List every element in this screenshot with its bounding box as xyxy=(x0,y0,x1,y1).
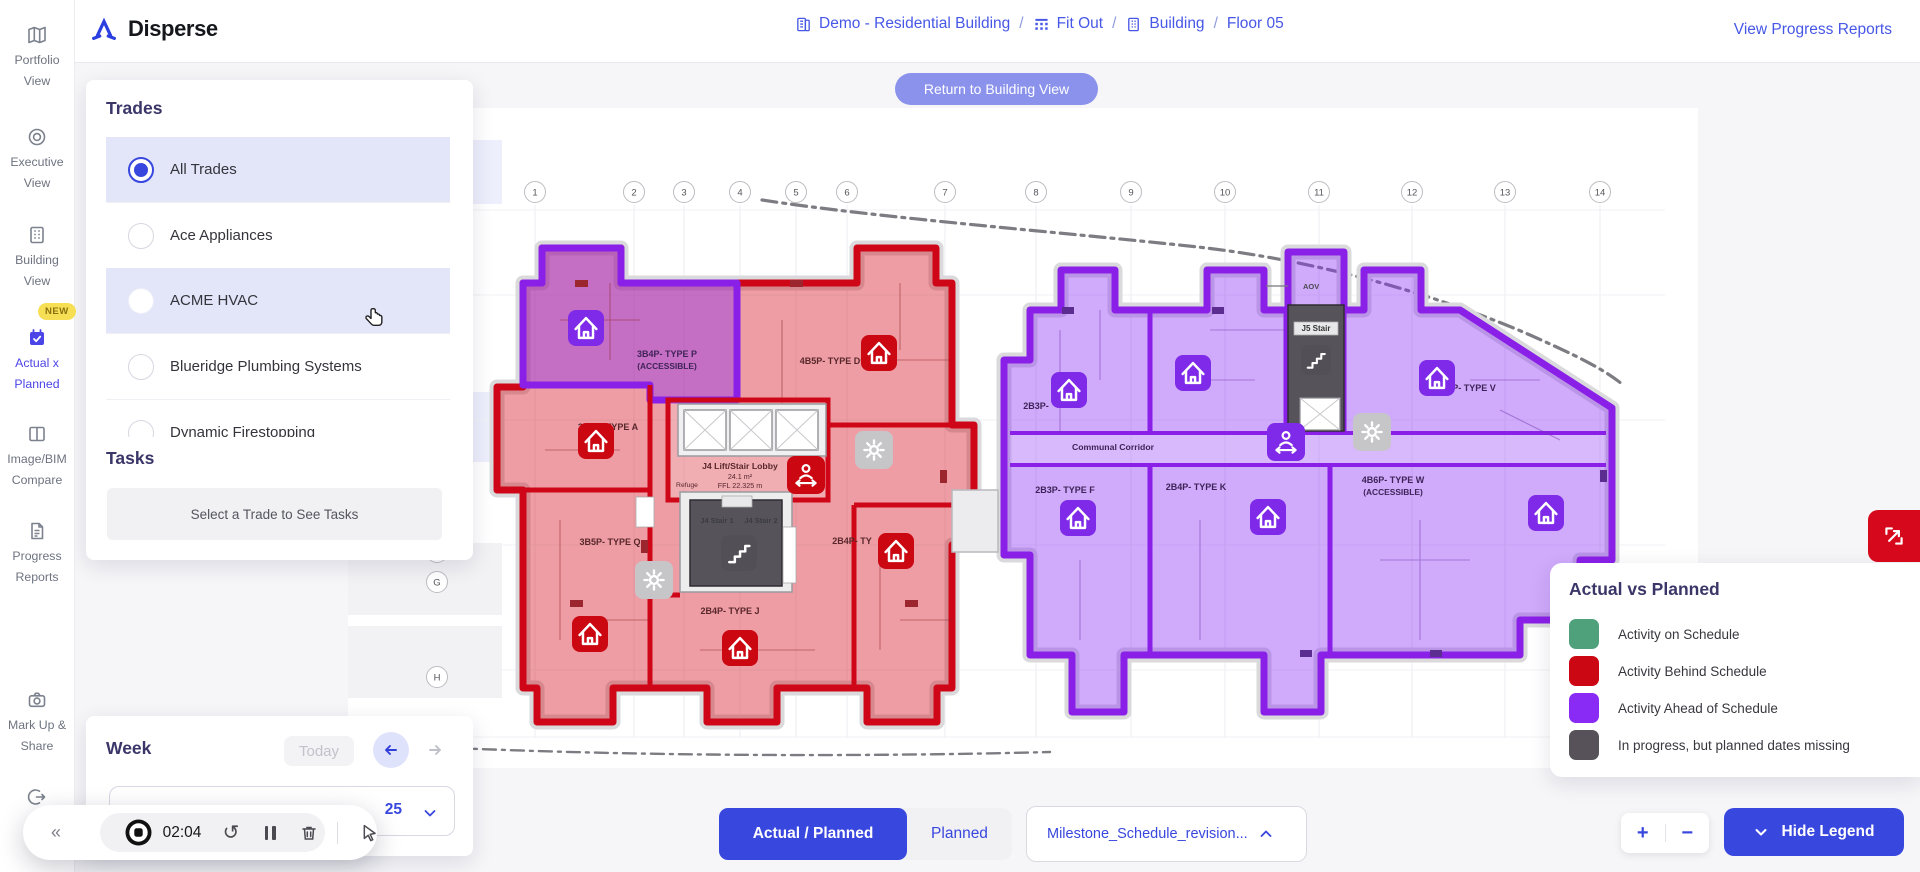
svg-text:13: 13 xyxy=(1500,188,1511,199)
legend-item-dates-missing: In progress, but planned dates missing xyxy=(1569,730,1850,760)
svg-text:(ACCESSIBLE): (ACCESSIBLE) xyxy=(637,361,697,371)
home-icon-badge-behind[interactable] xyxy=(572,616,608,652)
legend-swatch xyxy=(1569,656,1599,686)
svg-text:2B3P- TYPE F: 2B3P- TYPE F xyxy=(1035,485,1095,495)
svg-text:2B4P- TYPE J: 2B4P- TYPE J xyxy=(700,606,759,616)
sidebar-item-building-view[interactable]: Building View xyxy=(0,224,74,292)
radio-unselected[interactable] xyxy=(128,288,154,314)
svg-text:3B4P- TYPE P: 3B4P- TYPE P xyxy=(637,349,697,359)
sidebar-item-actual-x-planned[interactable]: NEW Actual x Planned xyxy=(0,327,74,395)
sidebar-item-image-bim-compare[interactable]: Image/BIM Compare xyxy=(0,423,74,491)
trade-option-dynamic-firestopping[interactable]: Dynamic Firestopping xyxy=(106,399,450,437)
sidebar-item-label: Executive View xyxy=(4,152,70,194)
legend-label: Activity Ahead of Schedule xyxy=(1618,701,1778,716)
trade-label: Ace Appliances xyxy=(170,227,273,244)
svg-text:12: 12 xyxy=(1407,188,1418,199)
svg-text:6: 6 xyxy=(844,188,849,199)
breadcrumb-project[interactable]: Demo - Residential Building xyxy=(795,15,1010,33)
svg-text:4B5P- TYPE D: 4B5P- TYPE D xyxy=(800,356,861,366)
tasks-placeholder: Select a Trade to See Tasks xyxy=(107,488,442,540)
schedule-revision-value: Milestone_Schedule_revision... xyxy=(1047,826,1248,842)
view-mode-toggle: Actual / Planned Planned xyxy=(719,808,1012,860)
breadcrumb-separator: / xyxy=(1112,15,1116,33)
phase-grid-icon xyxy=(1033,16,1050,33)
sidebar-item-label: Actual x Planned xyxy=(4,353,70,395)
breadcrumb-project-label: Demo - Residential Building xyxy=(819,15,1010,33)
trade-label: ACME HVAC xyxy=(170,292,258,309)
svg-text:1: 1 xyxy=(532,188,537,199)
breadcrumb-floor[interactable]: Floor 05 xyxy=(1227,15,1284,33)
zoom-out-button[interactable]: − xyxy=(1666,813,1710,853)
pause-icon[interactable] xyxy=(257,805,283,860)
svg-text:J4 Stair 2: J4 Stair 2 xyxy=(744,516,777,525)
stairs-icon-badge[interactable] xyxy=(721,535,757,571)
arrow-right-icon xyxy=(426,741,444,759)
app-logo[interactable]: Disperse xyxy=(88,13,218,45)
record-stop-button[interactable] xyxy=(123,805,153,860)
svg-text:2: 2 xyxy=(631,188,636,199)
trades-panel: Trades All Trades Ace Appliances ACME HV… xyxy=(86,80,473,560)
screen-recording-toolbar: « 02:04 ↺ xyxy=(23,805,377,860)
legend-title: Actual vs Planned xyxy=(1569,579,1720,600)
portfolio-building-icon xyxy=(795,16,812,33)
chevron-down-icon xyxy=(1753,824,1769,840)
svg-text:4B6P- TYPE W: 4B6P- TYPE W xyxy=(1362,475,1425,485)
actual-planned-toggle-active[interactable]: Actual / Planned xyxy=(719,808,907,860)
view-progress-reports-link[interactable]: View Progress Reports xyxy=(1734,21,1892,39)
breadcrumb-phase-label: Fit Out xyxy=(1057,15,1104,33)
sidebar-item-progress-reports[interactable]: Progress Reports xyxy=(0,520,74,588)
home-icon-badge-behind[interactable] xyxy=(578,423,614,459)
floorplan-canvas[interactable]: 12 34 56 78 910 1112 1314 EF GH xyxy=(348,108,1698,768)
tasks-title: Tasks xyxy=(106,448,154,469)
gear-icon-badge[interactable] xyxy=(855,431,893,469)
link-corridor xyxy=(952,490,998,552)
camera-icon xyxy=(26,689,48,711)
week-title: Week xyxy=(106,738,151,759)
home-icon-badge-behind[interactable] xyxy=(861,335,897,371)
sidebar-item-portfolio-view[interactable]: Portfolio View xyxy=(0,24,74,92)
trades-list: All Trades Ace Appliances ACME HVAC Blue… xyxy=(106,137,450,437)
map-icon xyxy=(26,24,48,46)
person-width-icon-badge-behind[interactable] xyxy=(787,456,825,494)
svg-text:P- TYPE V: P- TYPE V xyxy=(1452,383,1496,393)
trade-option-acme-hvac[interactable]: ACME HVAC xyxy=(106,268,450,333)
svg-text:24.1 m²: 24.1 m² xyxy=(728,472,753,481)
stairs-icon-badge[interactable] xyxy=(1301,345,1331,375)
left-sidebar: Portfolio View Executive View Building V… xyxy=(0,0,75,872)
brand-name: Disperse xyxy=(128,16,218,42)
sidebar-item-label: Image/BIM Compare xyxy=(4,449,70,491)
svg-text:10: 10 xyxy=(1220,188,1231,199)
pointer-icon[interactable] xyxy=(353,805,385,860)
svg-text:4: 4 xyxy=(737,188,742,199)
trades-title: Trades xyxy=(106,98,162,119)
legend-item-ahead-of-schedule: Activity Ahead of Schedule xyxy=(1569,693,1778,723)
breadcrumb-separator: / xyxy=(1019,15,1023,33)
home-icon-badge-ahead[interactable] xyxy=(1250,499,1286,535)
today-button[interactable]: Today xyxy=(284,736,354,766)
svg-text:7: 7 xyxy=(942,188,947,199)
sidebar-item-label: Mark Up & Share xyxy=(4,715,70,757)
breadcrumb-building[interactable]: Building xyxy=(1125,15,1204,33)
svg-text:G: G xyxy=(433,578,440,589)
home-icon-badge-ahead[interactable] xyxy=(1419,360,1455,396)
svg-text:FFL 22.325 m: FFL 22.325 m xyxy=(718,481,762,490)
home-icon-badge-ahead[interactable] xyxy=(1528,495,1564,531)
collapse-left-icon[interactable]: « xyxy=(43,805,69,860)
report-icon xyxy=(26,520,48,542)
legend-swatch xyxy=(1569,693,1599,723)
hide-legend-label: Hide Legend xyxy=(1781,823,1874,841)
building-icon xyxy=(26,224,48,246)
home-icon-badge-ahead[interactable] xyxy=(1175,355,1211,391)
recording-time: 02:04 xyxy=(157,805,207,860)
svg-text:AOV: AOV xyxy=(1303,282,1319,291)
gear-icon-badge[interactable] xyxy=(1353,413,1391,451)
legend-panel: Actual vs Planned Activity on Schedule A… xyxy=(1550,563,1920,777)
radio-selected[interactable] xyxy=(128,157,154,183)
zoom-control: + − xyxy=(1621,813,1709,853)
top-header: Disperse Demo - Residential Building / F… xyxy=(74,0,1920,63)
chevron-down-icon xyxy=(422,805,438,826)
disperse-logo-icon xyxy=(88,13,120,45)
divider xyxy=(335,805,339,860)
week-range-value: 25 xyxy=(385,801,402,819)
svg-text:2B4P- TY: 2B4P- TY xyxy=(832,536,872,546)
arrow-left-icon xyxy=(382,741,400,759)
home-icon-badge-behind[interactable] xyxy=(878,533,914,569)
breadcrumb-floor-label: Floor 05 xyxy=(1227,15,1284,33)
svg-text:2B3P-: 2B3P- xyxy=(1023,401,1049,411)
legend-label: Activity on Schedule xyxy=(1618,627,1740,642)
svg-text:J4 Stair 1: J4 Stair 1 xyxy=(700,516,733,525)
sidebar-item-label: Progress Reports xyxy=(4,546,70,588)
home-icon-badge-ahead[interactable] xyxy=(568,310,604,346)
svg-text:2B4P- TYPE K: 2B4P- TYPE K xyxy=(1166,482,1227,492)
legend-label: Activity Behind Schedule xyxy=(1618,664,1767,679)
home-icon-badge-ahead[interactable] xyxy=(1060,500,1096,536)
svg-text:3: 3 xyxy=(681,188,686,199)
svg-text:Communal Corridor: Communal Corridor xyxy=(1072,442,1155,452)
person-width-icon-badge-ahead[interactable] xyxy=(1267,423,1305,461)
legend-item-on-schedule: Activity on Schedule xyxy=(1569,619,1740,649)
trade-label: Blueridge Plumbing Systems xyxy=(170,358,362,375)
next-week-button[interactable] xyxy=(417,732,453,768)
trash-icon[interactable] xyxy=(295,805,323,860)
legend-label: In progress, but planned dates missing xyxy=(1618,738,1850,753)
legend-item-behind-schedule: Activity Behind Schedule xyxy=(1569,656,1767,686)
svg-text:8: 8 xyxy=(1033,188,1038,199)
planned-toggle[interactable]: Planned xyxy=(907,825,1012,843)
legend-swatch xyxy=(1569,730,1599,760)
trade-label: All Trades xyxy=(170,161,237,178)
expand-icon xyxy=(1881,523,1907,549)
trade-option-all-trades[interactable]: All Trades xyxy=(106,137,450,202)
gear-icon-badge[interactable] xyxy=(635,561,673,599)
radio-unselected[interactable] xyxy=(128,223,154,249)
breadcrumb-separator: / xyxy=(1214,15,1218,33)
breadcrumb-phase[interactable]: Fit Out xyxy=(1033,15,1104,33)
zoom-in-button[interactable]: + xyxy=(1621,813,1665,853)
svg-text:H: H xyxy=(434,673,441,684)
chevron-up-icon xyxy=(1258,826,1274,842)
new-badge: NEW xyxy=(38,303,76,320)
svg-text:3B5P- TYPE Q: 3B5P- TYPE Q xyxy=(579,537,640,547)
split-view-icon xyxy=(26,423,48,445)
target-icon xyxy=(26,126,48,148)
sidebar-item-label: Portfolio View xyxy=(4,50,70,92)
trade-option-ace-appliances[interactable]: Ace Appliances xyxy=(106,202,450,268)
hide-legend-button[interactable]: Hide Legend xyxy=(1724,808,1904,856)
radio-unselected[interactable] xyxy=(128,420,154,438)
legend-swatch xyxy=(1569,619,1599,649)
schedule-revision-dropdown[interactable]: Milestone_Schedule_revision... xyxy=(1026,806,1307,862)
trade-label: Dynamic Firestopping xyxy=(170,424,315,437)
home-icon-badge-ahead[interactable] xyxy=(1051,372,1087,408)
return-to-building-view-button[interactable]: Return to Building View xyxy=(895,73,1098,105)
svg-text:Refuge: Refuge xyxy=(676,482,698,489)
radio-unselected[interactable] xyxy=(128,354,154,380)
svg-text:J4 Lift/Stair Lobby: J4 Lift/Stair Lobby xyxy=(702,461,778,471)
svg-text:14: 14 xyxy=(1595,188,1606,199)
sidebar-item-mark-up-share[interactable]: Mark Up & Share xyxy=(0,689,74,757)
svg-text:5: 5 xyxy=(793,188,798,199)
svg-text:11: 11 xyxy=(1314,188,1324,199)
svg-text:J5 Stair: J5 Stair xyxy=(1302,324,1331,333)
previous-week-button[interactable] xyxy=(373,732,409,768)
breadcrumb: Demo - Residential Building / Fit Out / … xyxy=(795,15,1284,33)
home-icon-badge-behind[interactable] xyxy=(722,630,758,666)
trade-option-blueridge-plumbing[interactable]: Blueridge Plumbing Systems xyxy=(106,333,450,399)
breadcrumb-building-label: Building xyxy=(1149,15,1204,33)
calendar-check-icon xyxy=(26,327,48,349)
restart-icon[interactable]: ↺ xyxy=(217,805,245,860)
svg-text:9: 9 xyxy=(1128,188,1133,199)
sidebar-item-label: Building View xyxy=(4,250,70,292)
svg-text:(ACCESSIBLE): (ACCESSIBLE) xyxy=(1363,487,1423,497)
sidebar-item-executive-view[interactable]: Executive View xyxy=(0,126,74,194)
building-icon xyxy=(1125,16,1142,33)
expand-schedule-button[interactable] xyxy=(1868,510,1920,562)
